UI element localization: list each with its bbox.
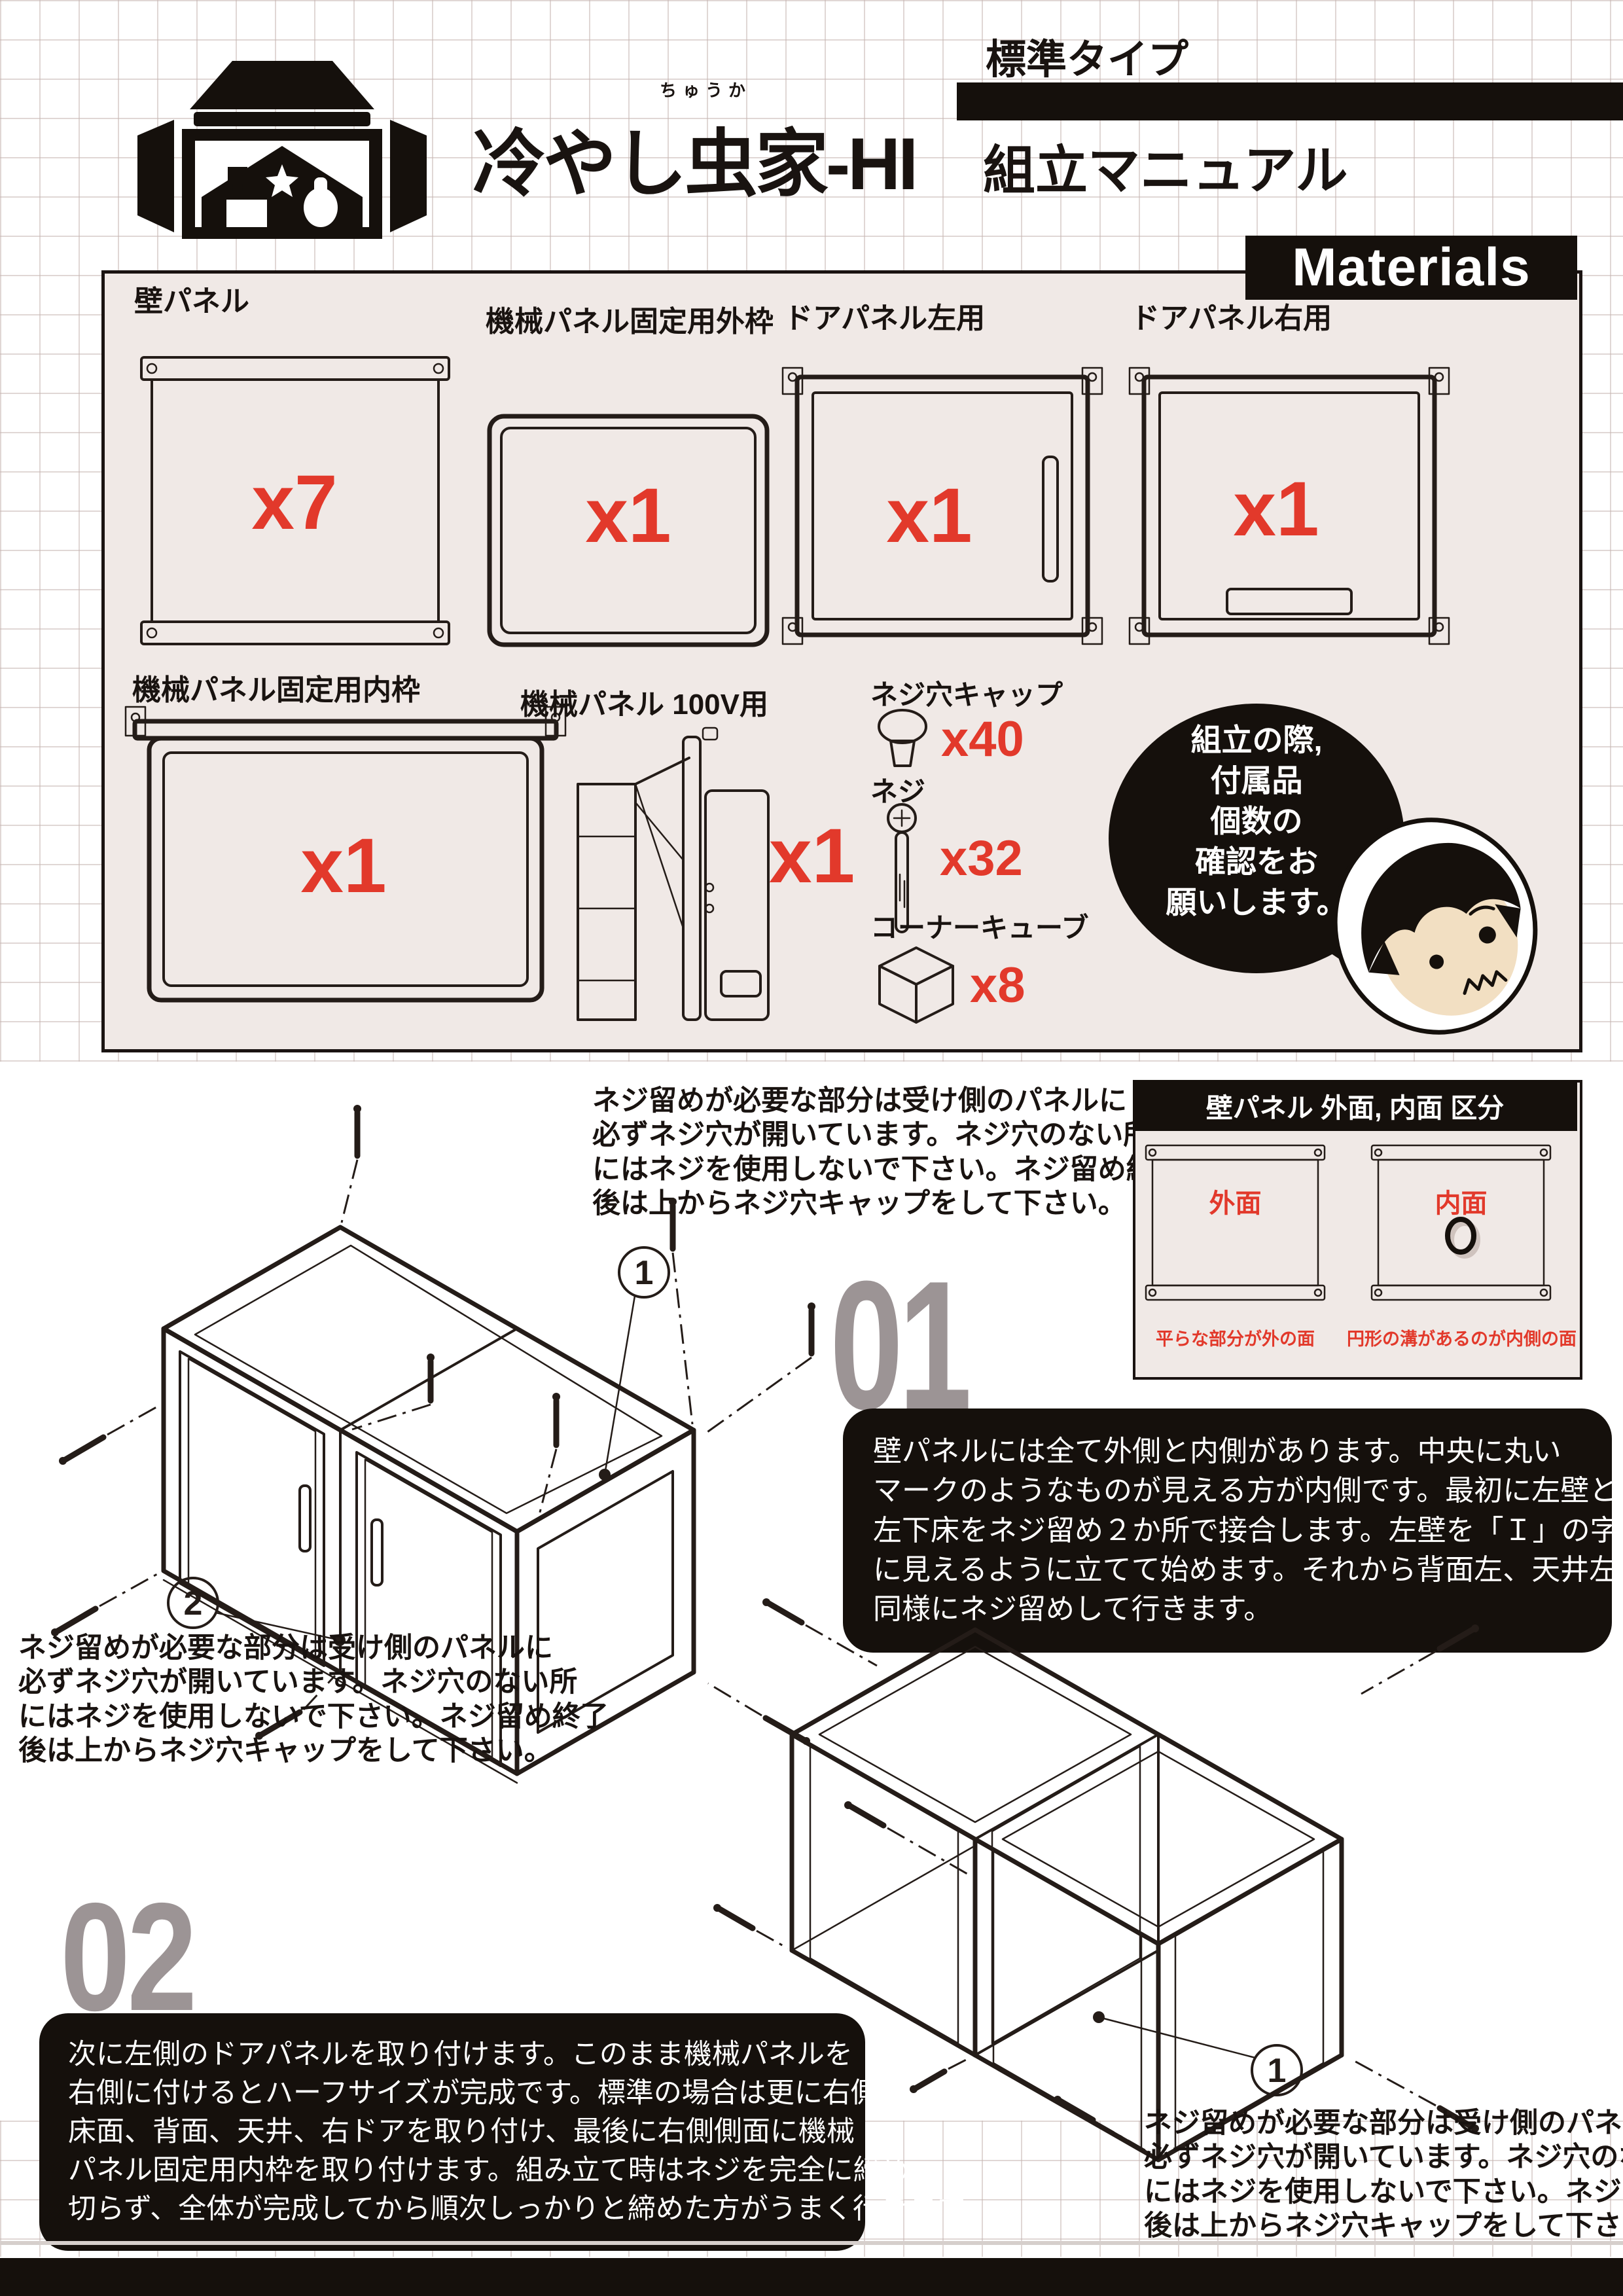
footer-rule (0, 2241, 1623, 2245)
header-divider-bar (957, 82, 1623, 120)
panel-guide-outer-caption: 平らな部分が外の面 (1142, 1325, 1329, 1350)
product-type-label: 標準タイプ (986, 26, 1188, 85)
materials-tab: Materials (1245, 236, 1577, 300)
screw-marker (713, 1598, 1479, 2153)
panel-guide-inner-caption: 円形の溝があるのが内側の面 (1347, 1325, 1576, 1350)
page-title: 組立マニュアル (983, 128, 1348, 204)
screw-note-left: ネジ留めが必要な部分は受け側のパネルに必ずネジ穴が開いています。ネジ穴のない所に… (18, 1631, 609, 1768)
footer-bar (0, 2258, 1623, 2296)
corner-cube-count: x8 (970, 957, 1026, 1014)
step1-callout-1: 1 (635, 1254, 654, 1292)
step2-callout-1: 1 (1268, 2052, 1287, 2090)
door-left-count: x1 (851, 471, 1008, 560)
panel-guide-inner-label: 内面 (1368, 1182, 1554, 1220)
corner-cube-icon (873, 941, 959, 1028)
panel-guide-outer-drawing (1142, 1144, 1329, 1304)
panel-guide-outer-label: 外面 (1142, 1182, 1329, 1220)
outer-frame-label: 機械パネル固定用外枠 (486, 298, 774, 340)
door-left-label: ドアパネル左用 (784, 295, 985, 336)
materials-tab-label: Materials (1292, 237, 1531, 298)
outer-frame-count: x1 (550, 471, 707, 560)
brand-name: 冷やし虫家-HI (473, 105, 916, 211)
panel-guide-inner-drawing (1368, 1144, 1554, 1304)
cap-label: ネジ穴キャップ (870, 673, 1063, 713)
manual-page: ちゅうか 冷やし虫家-HI 標準タイプ 組立マニュアル Materials 壁パ… (0, 0, 1623, 2296)
brand-logo-icon (98, 36, 465, 239)
wall-panel-label: 壁パネル (134, 278, 249, 319)
screw-marker (342, 1105, 815, 1520)
door-right-label: ドアパネル右用 (1131, 295, 1332, 336)
panel-guide-header: 壁パネル 外面, 内面 区分 (1133, 1080, 1577, 1131)
brand-furigana: ちゅうか (660, 77, 751, 101)
corner-cube-label: コーナーキューブ (870, 906, 1088, 946)
machine-panel-drawing (568, 712, 784, 1033)
screw-count: x32 (940, 830, 1023, 887)
step2-assembly-diagram: 1 (694, 1590, 1623, 2166)
mascot-face (1327, 812, 1546, 1041)
inner-frame-count: x1 (265, 821, 422, 910)
step1-callout-2: 2 (184, 1585, 203, 1623)
panel-guide-title: 壁パネル 外面, 内面 区分 (1206, 1086, 1505, 1125)
screw-note-bottom: ネジ留めが必要な部分は受け側のパネルに必ずネジ穴が開いています。ネジ穴のない所に… (1144, 2106, 1623, 2244)
wall-panel-count: x7 (216, 458, 373, 547)
door-right-count: x1 (1198, 465, 1355, 554)
step2-number: 02 (60, 1880, 194, 2034)
cap-count: x40 (941, 711, 1024, 768)
cap-icon (874, 708, 931, 771)
